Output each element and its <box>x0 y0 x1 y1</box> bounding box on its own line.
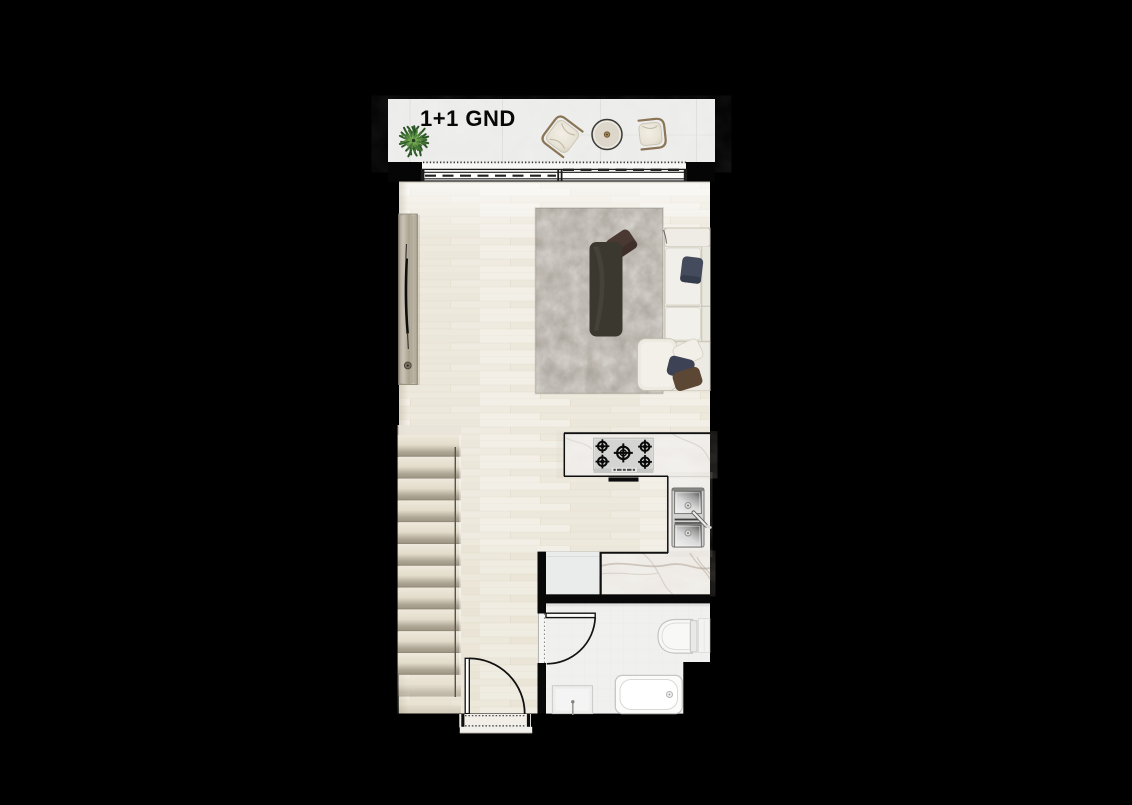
svg-text:1+1 GND: 1+1 GND <box>420 106 516 131</box>
